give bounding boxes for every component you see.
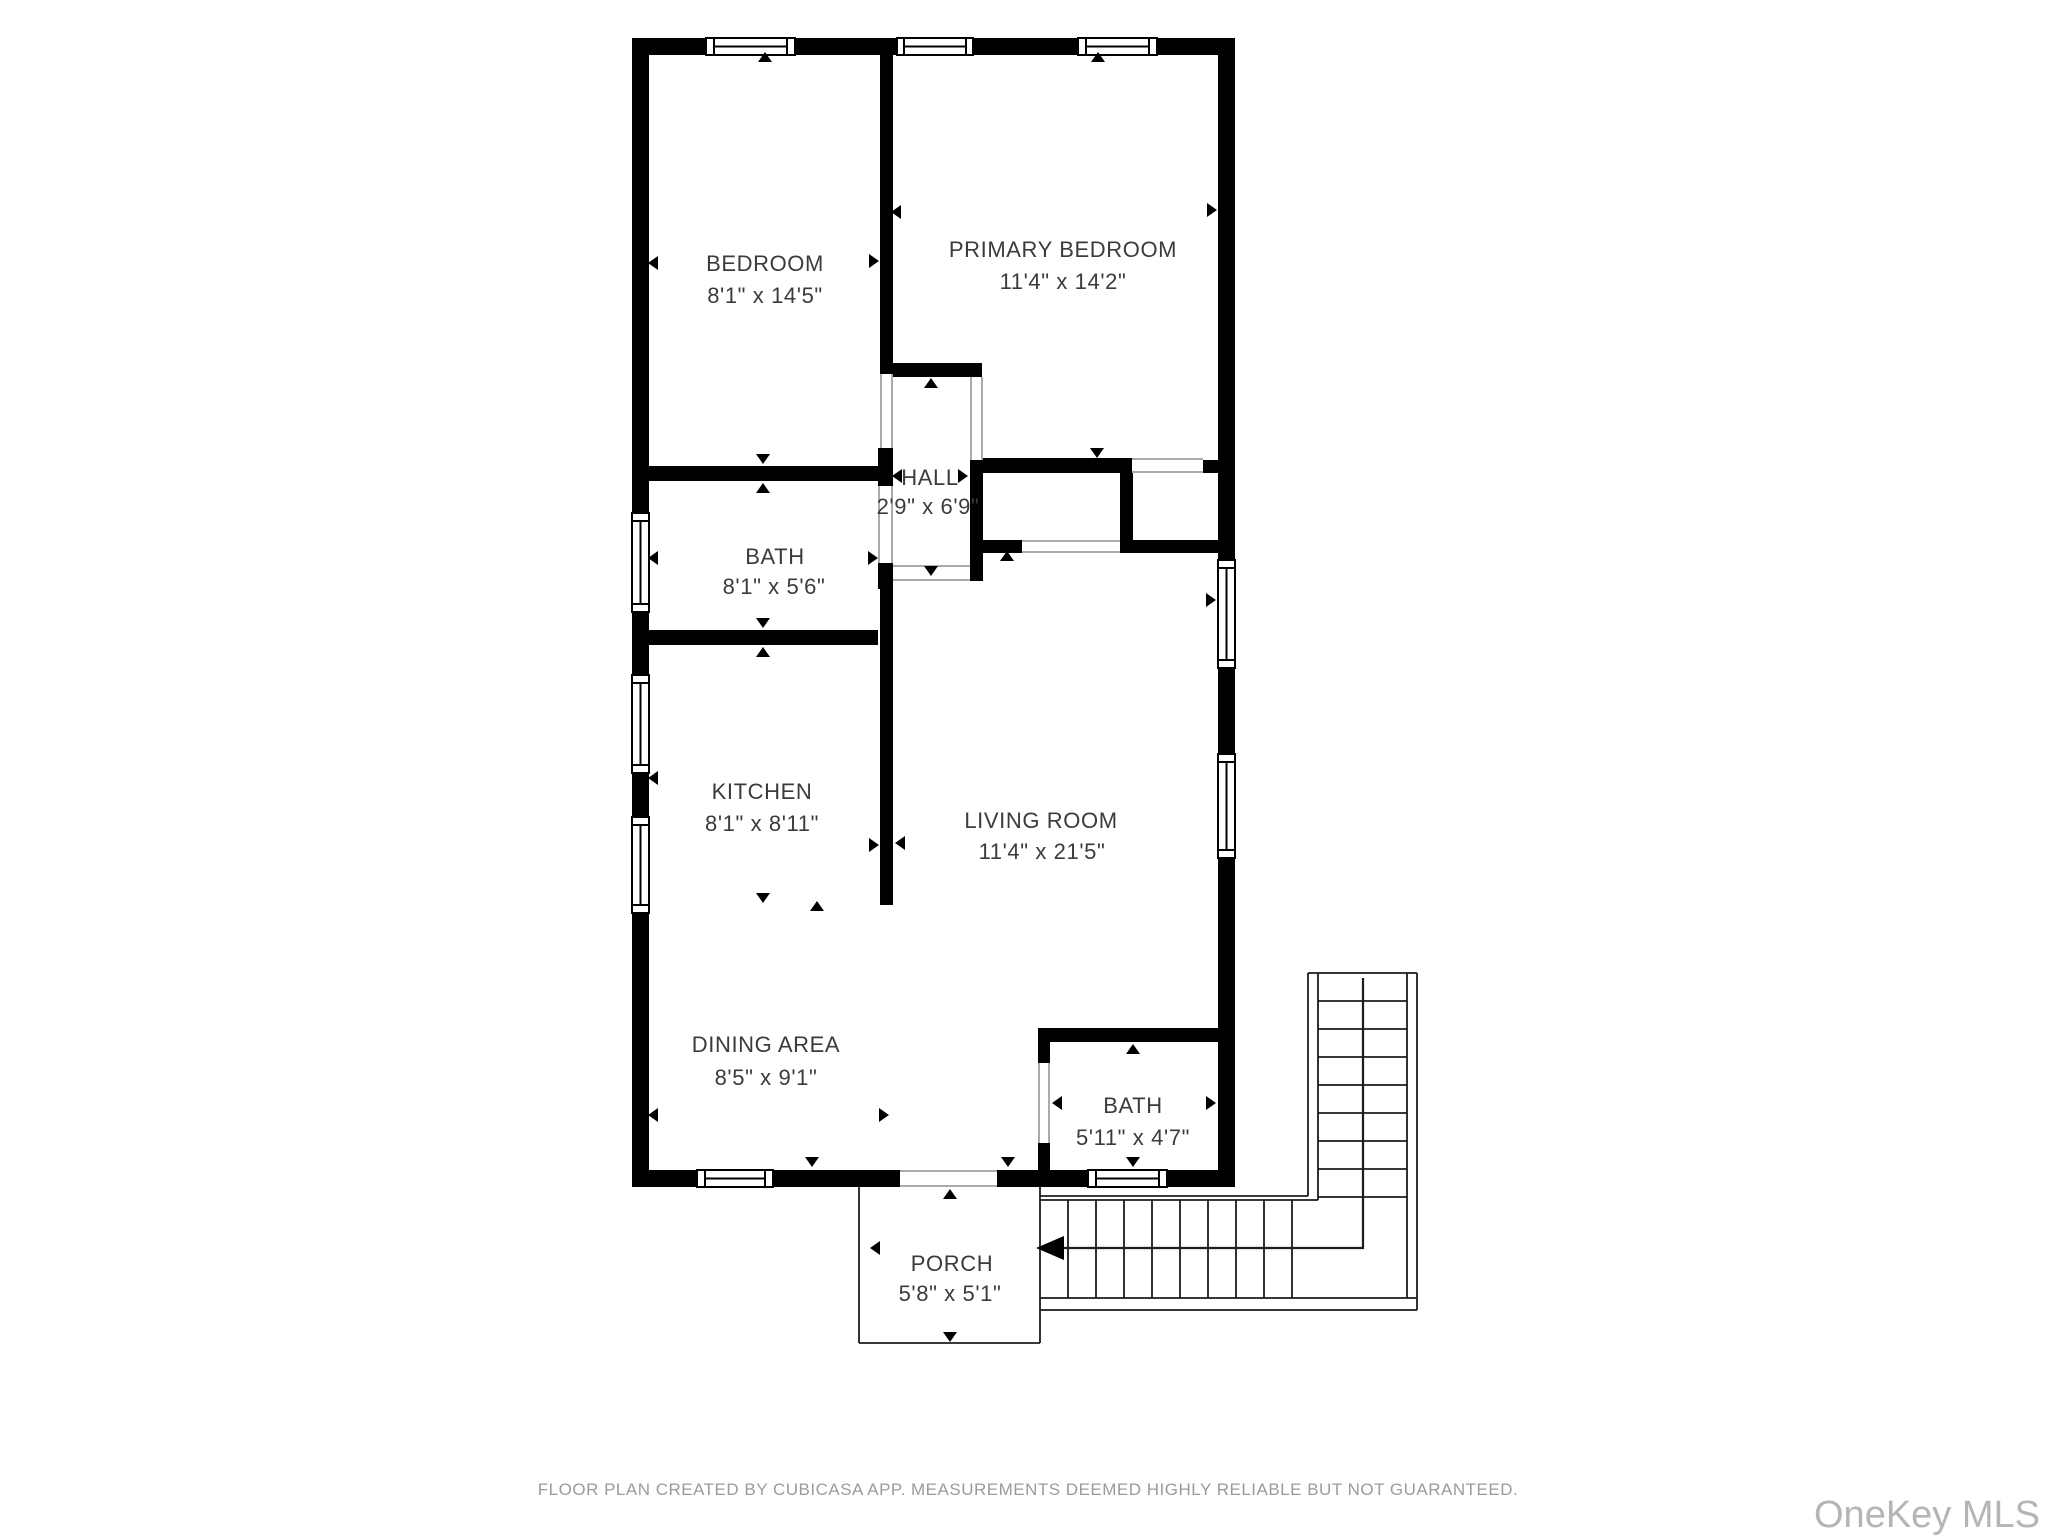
- wall-bath2-top: [1038, 1028, 1235, 1042]
- door-hall-to-primary: [970, 377, 983, 460]
- room-dimensions: 5'11" x 4'7": [1076, 1125, 1190, 1150]
- room-label-dining-area: DINING AREA 8'5" x 9'1": [692, 1032, 840, 1090]
- room-label-kitchen: KITCHEN 8'1" x 8'11": [705, 779, 819, 836]
- measure-arrows-kitchen: [648, 647, 879, 903]
- room-label-porch: PORCH 5'8" x 5'1": [899, 1251, 1002, 1306]
- room-dimensions: 2'9" x 6'9": [877, 494, 980, 519]
- room-name: BATH: [745, 544, 804, 569]
- measure-arrows-living: [895, 593, 1216, 1167]
- door-bath2: [1038, 1063, 1050, 1143]
- floor-plan-drawing: BEDROOM 8'1" x 14'5" PRIMARY BEDROOM 11'…: [0, 0, 2048, 1536]
- window-bedroom-top: [706, 38, 795, 55]
- room-name: HALL: [901, 465, 958, 490]
- window-bath2-bottom: [1088, 1170, 1167, 1187]
- window-bath-left: [632, 513, 649, 612]
- wall-bedroom-primary-divider: [880, 54, 893, 374]
- wall-kitchen-living-divider: [880, 587, 893, 905]
- window-living-right-lower: [1218, 754, 1235, 858]
- wall-closet-bottom-left: [970, 540, 1022, 553]
- walls: [632, 38, 1235, 1187]
- room-name: PRIMARY BEDROOM: [949, 237, 1177, 262]
- window-primary-top-right: [1078, 38, 1157, 55]
- room-name: PORCH: [911, 1251, 993, 1276]
- window-dining-bottom: [697, 1170, 773, 1187]
- room-name: BEDROOM: [706, 251, 824, 276]
- window-living-right-upper: [1218, 560, 1235, 668]
- opening-closet-top: [1132, 458, 1203, 473]
- wall-bedroom-bath: [632, 466, 880, 481]
- wall-hall-jamb-left: [878, 563, 893, 589]
- door-porch: [900, 1170, 997, 1187]
- stairs-direction-arrow: [1036, 978, 1363, 1260]
- room-label-bedroom: BEDROOM 8'1" x 14'5": [706, 251, 824, 308]
- door-closet-bottom: [1022, 540, 1120, 553]
- floor-plan-page: BEDROOM 8'1" x 14'5" PRIMARY BEDROOM 11'…: [0, 0, 2048, 1536]
- room-label-primary-bedroom: PRIMARY BEDROOM 11'4" x 14'2": [949, 237, 1177, 294]
- wall-hall-east: [970, 460, 983, 581]
- wall-closet-bottom-right: [1120, 540, 1220, 553]
- windows: [632, 38, 1235, 1187]
- disclaimer-text: FLOOR PLAN CREATED BY CUBICASA APP. MEAS…: [538, 1480, 1518, 1499]
- door-bedroom: [880, 374, 893, 448]
- room-name: BATH: [1103, 1093, 1162, 1118]
- room-label-bath: BATH 8'1" x 5'6": [723, 544, 826, 599]
- room-dimensions: 8'1" x 14'5": [707, 283, 823, 308]
- room-name: DINING AREA: [692, 1032, 840, 1057]
- room-label-living-room: LIVING ROOM 11'4" x 21'5": [964, 808, 1117, 864]
- room-dimensions: 11'4" x 21'5": [979, 839, 1106, 864]
- room-dimensions: 8'1" x 8'11": [705, 811, 819, 836]
- wall-bath-kitchen: [632, 630, 878, 645]
- window-primary-top-left: [897, 38, 973, 55]
- room-label-bath2: BATH 5'11" x 4'7": [1076, 1093, 1190, 1150]
- room-dimensions: 11'4" x 14'2": [1000, 269, 1127, 294]
- wall-primary-bottom: [880, 363, 982, 377]
- room-dimensions: 8'1" x 5'6": [723, 574, 826, 599]
- wall-closet-top-stub: [1203, 460, 1223, 473]
- window-kitchen-left-lower: [632, 817, 649, 913]
- wall-closet-top: [970, 458, 1132, 473]
- wall-bath-ne-corner: [878, 448, 893, 486]
- room-name: LIVING ROOM: [964, 808, 1117, 833]
- onekey-mls-watermark: OneKey MLS: [1814, 1494, 2040, 1536]
- room-dimensions: 8'5" x 9'1": [715, 1065, 818, 1090]
- window-kitchen-left-upper: [632, 675, 649, 773]
- room-dimensions: 5'8" x 5'1": [899, 1281, 1002, 1306]
- measure-arrows-primary-bedroom: [891, 52, 1217, 219]
- room-name: KITCHEN: [712, 779, 813, 804]
- room-labels: BEDROOM 8'1" x 14'5" PRIMARY BEDROOM 11'…: [692, 237, 1190, 1306]
